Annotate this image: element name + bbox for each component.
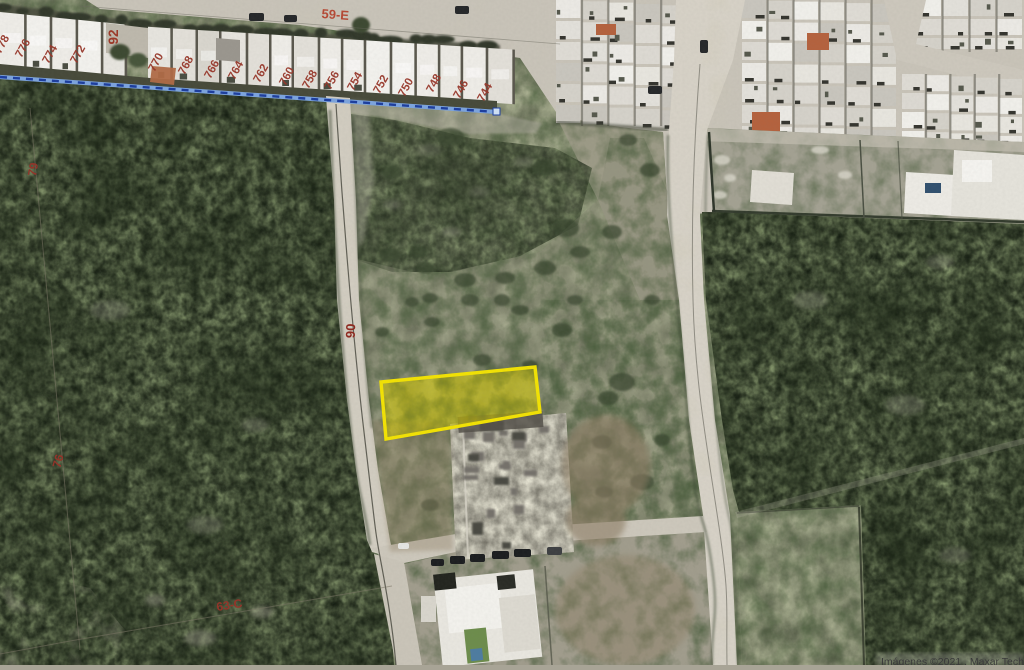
svg-text:Imágenes ©2021 , Maxar Technol: Imágenes ©2021 , Maxar Technologies [881, 656, 1024, 665]
svg-text:59-E: 59-E [321, 6, 350, 23]
svg-text:90: 90 [343, 323, 358, 338]
svg-text:79: 79 [25, 161, 41, 177]
svg-text:92: 92 [106, 29, 121, 44]
